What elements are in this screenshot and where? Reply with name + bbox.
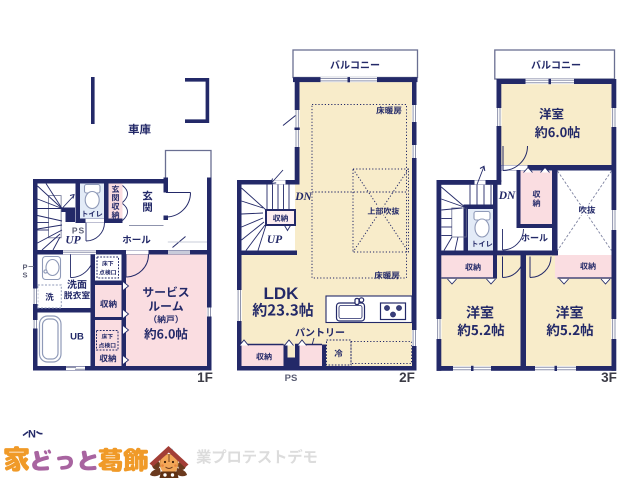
svg-text:DN: DN: [498, 190, 516, 202]
svg-text:UP: UP: [267, 234, 283, 246]
svg-text:LDK: LDK: [264, 284, 300, 303]
svg-text:1F: 1F: [197, 370, 213, 385]
svg-text:UP: UP: [65, 235, 81, 247]
svg-text:3F: 3F: [601, 370, 617, 385]
svg-text:2F: 2F: [399, 370, 415, 385]
svg-text:UB: UB: [70, 332, 84, 343]
svg-text:S: S: [22, 271, 27, 280]
svg-text:N: N: [28, 429, 36, 441]
svg-text:DN: DN: [294, 191, 312, 203]
svg-text:PS: PS: [285, 373, 298, 384]
